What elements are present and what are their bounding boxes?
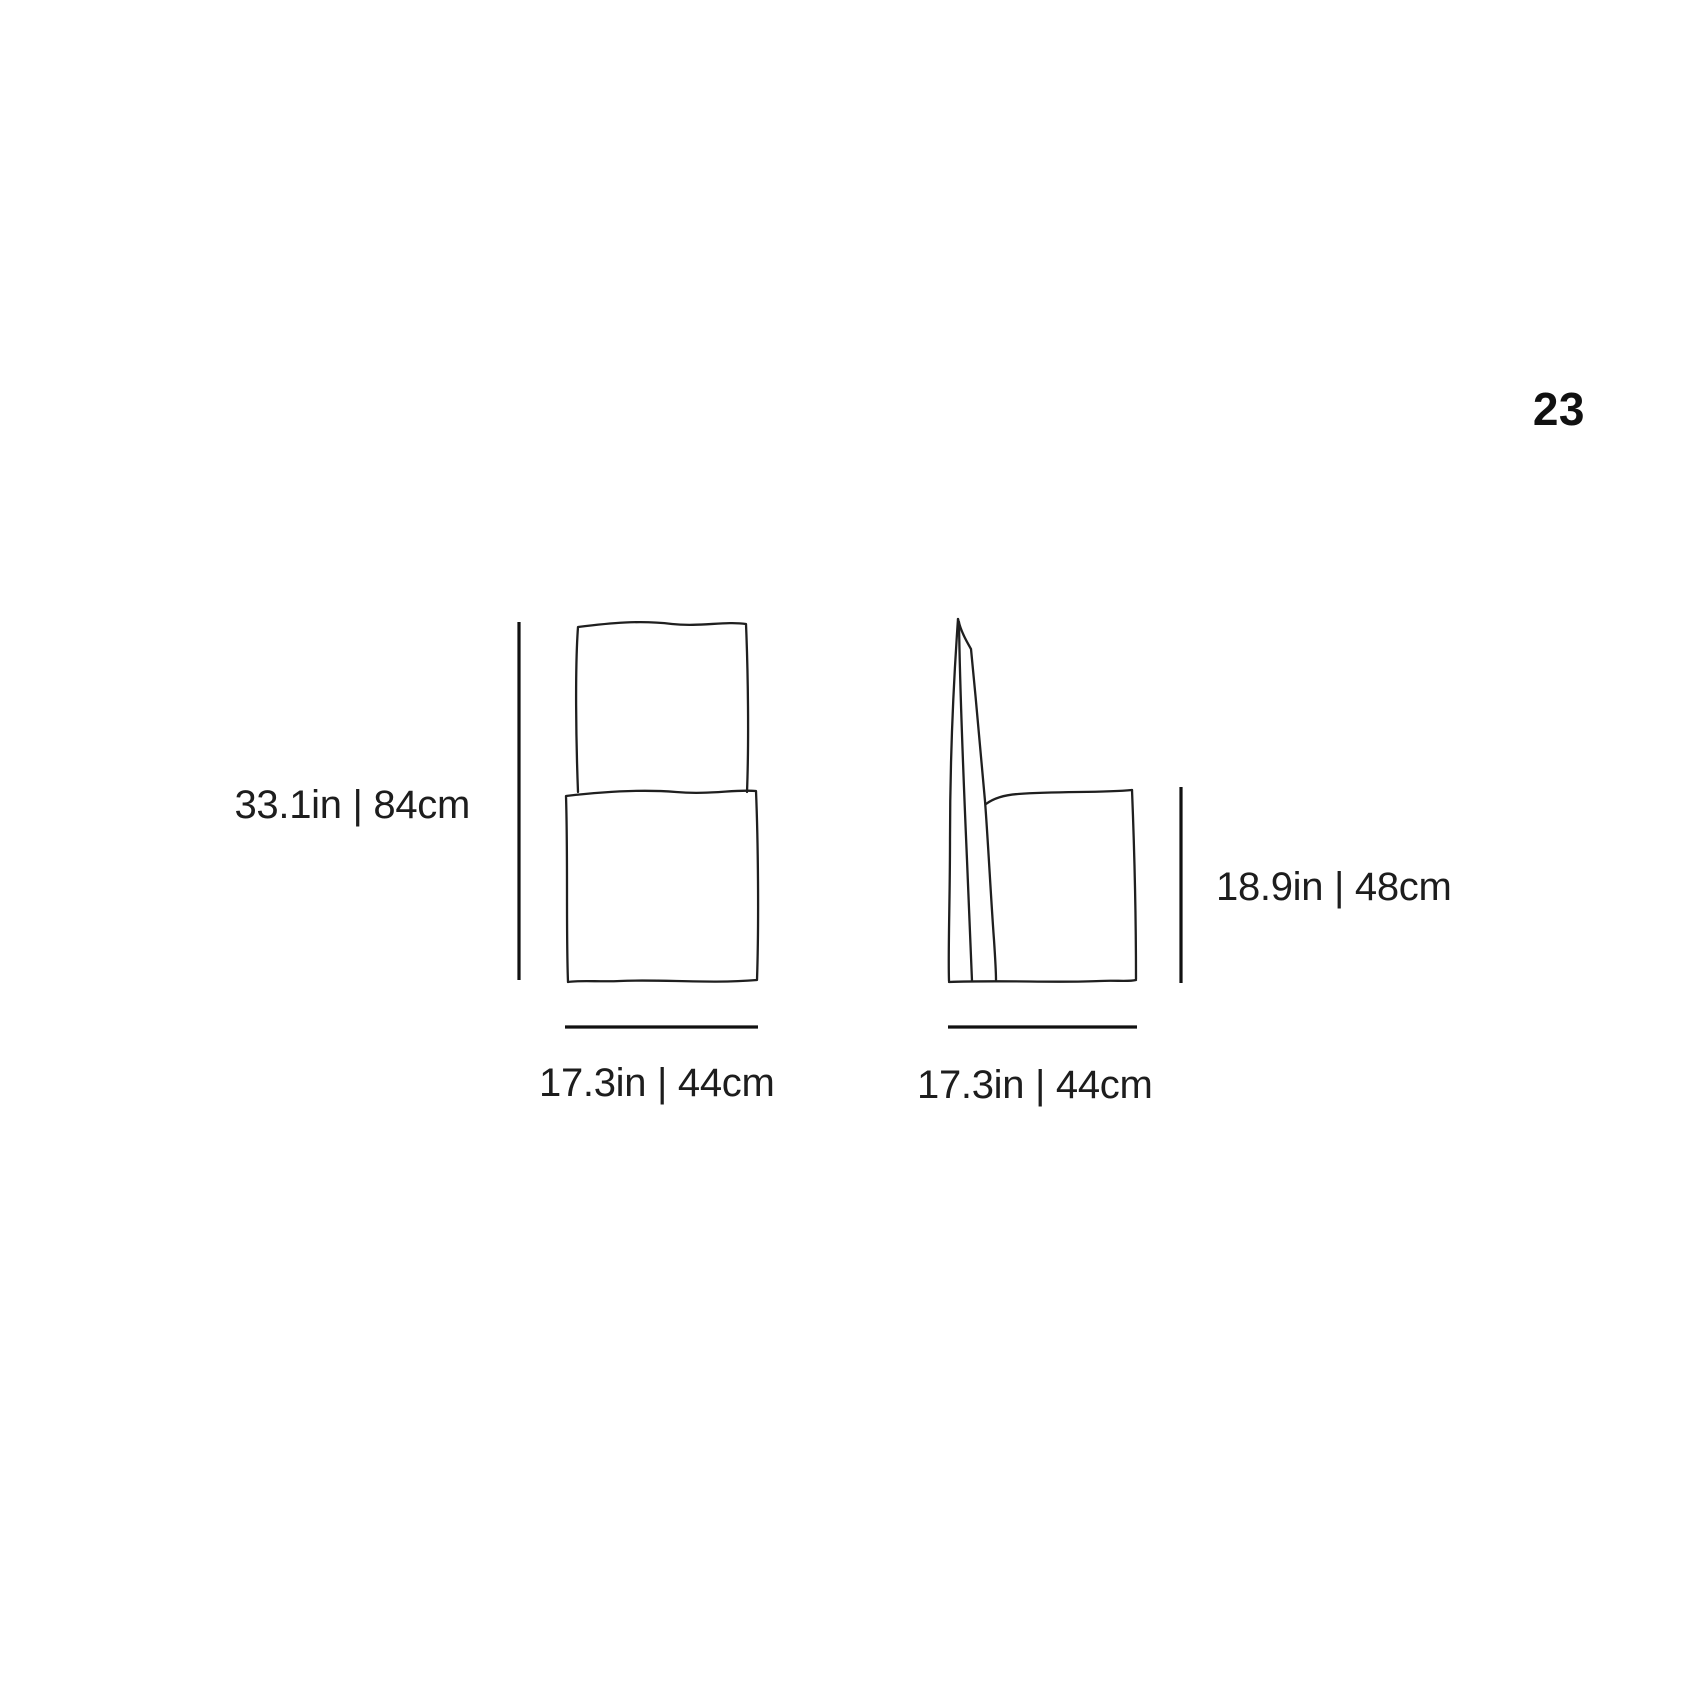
chair-front-view-outline — [566, 622, 758, 982]
width-dimension-label: 17.3in | 44cm — [539, 1060, 775, 1106]
seat-height-dimension-label: 18.9in | 48cm — [1216, 864, 1452, 910]
overall-height-dimension-label: 33.1in | 84cm — [150, 782, 470, 828]
side-seat-bottom-edge — [949, 980, 1136, 982]
side-seat-front-edge — [1132, 790, 1136, 979]
front-seat-outline — [566, 791, 758, 982]
side-backrest-left-edge — [949, 619, 958, 981]
side-seat-top-edge — [986, 790, 1132, 804]
front-backrest-outline — [576, 622, 748, 792]
spec-sheet-page: 23 33.1in | 84cm 18.9in | 48cm 17.3in | … — [0, 0, 1700, 1700]
chair-side-view-outline — [949, 619, 1136, 982]
depth-dimension-label: 17.3in | 44cm — [917, 1062, 1153, 1108]
chair-dimension-diagram — [0, 0, 1700, 1700]
side-backrest-middle-fold — [959, 622, 972, 981]
